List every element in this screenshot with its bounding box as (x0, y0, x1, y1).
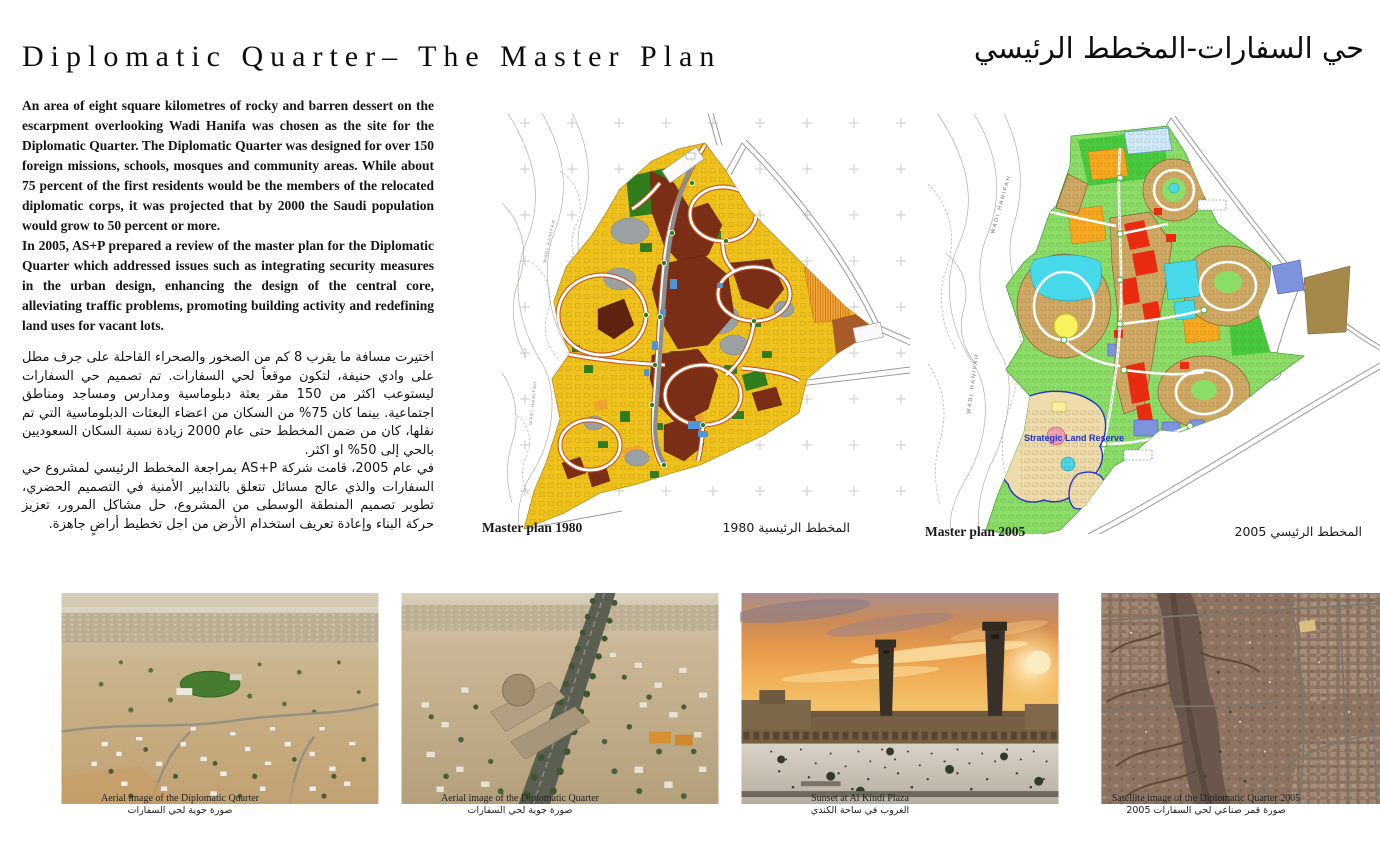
distant-city-band (62, 613, 379, 643)
callout-box (1198, 200, 1226, 210)
master-plan-1980-map: WADI HANIFAH WADI HANIFAH (502, 112, 910, 532)
intro-paragraph-en-2: In 2005, AS+P prepared a review of the m… (22, 236, 434, 336)
brown-parcel-right (1304, 266, 1350, 334)
map-2005-caption-ar: المخطط الرئيسي 2005 (1235, 524, 1362, 539)
intro-text-column: An area of eight square kilometres of ro… (22, 96, 434, 534)
blue-parcel-right (1272, 260, 1304, 294)
photo-3-caption-en: Sunset at Al Kindi Plaza (811, 793, 909, 804)
photo-4-caption-ar: صورة قمر صناعي لحي السفارات 2005 (1060, 805, 1352, 817)
distant-city-band (402, 605, 719, 631)
callout-box (1124, 450, 1152, 460)
urban-grid-right (1295, 593, 1380, 702)
photo-satellite (1100, 593, 1380, 804)
photo-1-caption-en: Aerial image of the Diplomatic Quarter (101, 793, 259, 804)
photo-3-caption: Sunset at Al Kindi Plaza الغروب في ساحة … (700, 792, 1020, 817)
arcade-arches (742, 732, 1059, 742)
map-1980-caption-en: Master plan 1980 (482, 520, 582, 536)
map-1980-caption-ar: المخطط الرئيسية 1980 (722, 520, 850, 535)
photo-sunset-al-kindi (740, 593, 1060, 804)
photo-1-caption-ar: صورة جوية لحي السفارات (20, 805, 340, 817)
photo-4-caption: Satellite image of the Diplomatic Quarte… (1060, 792, 1352, 817)
page-title-arabic: حي السفارات-المخطط الرئيسي (974, 31, 1364, 65)
photo-3-caption-ar: الغروب في ساحة الكندي (700, 805, 1020, 817)
presentation-board: Diplomatic Quarter– The Master Plan حي ا… (0, 0, 1380, 855)
yellow-feature (1054, 314, 1078, 338)
photo-2-caption-ar: صورة جوية لحي السفارات (360, 805, 680, 817)
master-plan-2005-map: WADI HANIFAH WADI HANIFAH (928, 114, 1380, 534)
orange-roof-compound (649, 732, 671, 744)
strategic-land-reserve-label: Strategic Land Reserve (1024, 433, 1124, 443)
map-2005-caption-en: Master plan 2005 (925, 524, 1025, 540)
photo-2-caption: Aerial image of the Diplomatic Quarter ص… (360, 792, 680, 817)
page-title: Diplomatic Quarter– The Master Plan (22, 40, 721, 74)
master-plan-1980-drawing: WADI HANIFAH WADI HANIFAH (502, 112, 910, 532)
photo-aerial-1 (60, 593, 380, 804)
intro-paragraph-ar-2: في عام 2005، قامت شركة AS+P بمراجعة المخ… (22, 460, 434, 534)
master-plan-2005-drawing: WADI HANIFAH WADI HANIFAH (928, 114, 1380, 534)
urban-grid-left (1101, 593, 1165, 687)
photo-aerial-2 (400, 593, 720, 804)
photo-1-caption: Aerial image of the Diplomatic Quarter ص… (20, 792, 340, 817)
bright-sand-area (1299, 620, 1316, 633)
intro-paragraph-en-1: An area of eight square kilometres of ro… (22, 96, 434, 236)
photo-2-caption-en: Aerial image of the Diplomatic Quarter (441, 793, 599, 804)
intro-paragraph-ar-1: اختيرت مسافة ما يقرب 8 كم من الصخور والص… (22, 349, 434, 460)
photo-4-caption-en: Satellite image of the Diplomatic Quarte… (1112, 793, 1300, 804)
map-2005-caption: Master plan 2005 المخطط الرئيسي 2005 (925, 524, 1362, 540)
circular-plaza (503, 674, 535, 706)
map-1980-caption: Master plan 1980 المخطط الرئيسية 1980 (482, 520, 850, 536)
